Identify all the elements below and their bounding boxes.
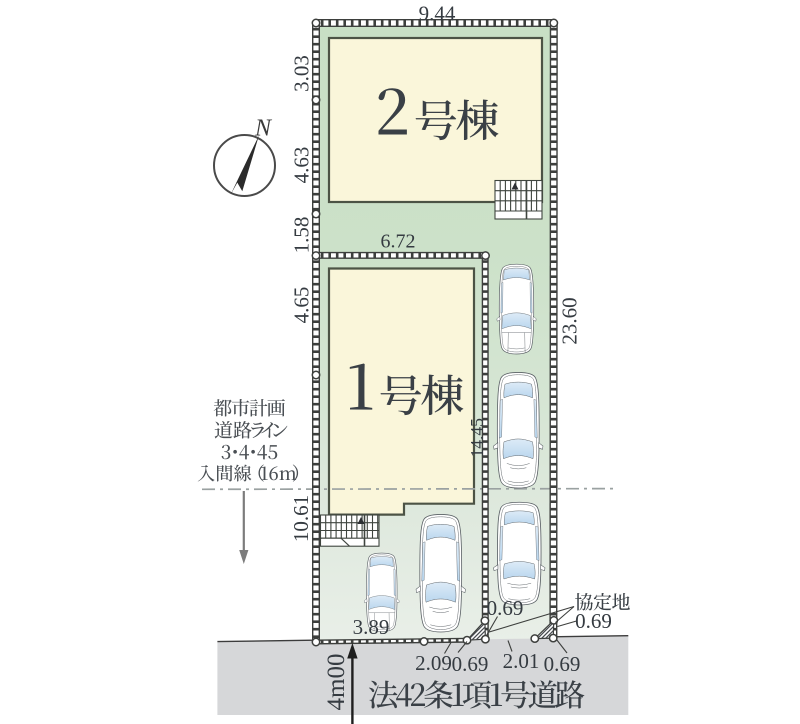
svg-text:2.09: 2.09	[415, 651, 452, 675]
svg-text:1.58: 1.58	[290, 217, 314, 254]
svg-text:14.45: 14.45	[467, 418, 487, 458]
svg-text:2.01: 2.01	[503, 649, 540, 673]
svg-text:6.72: 6.72	[381, 231, 416, 253]
svg-text:9.44: 9.44	[419, 2, 456, 26]
svg-text:23.60: 23.60	[558, 297, 582, 344]
svg-text:10.61: 10.61	[289, 495, 313, 542]
svg-text:4.65: 4.65	[290, 287, 314, 324]
svg-text:0.69: 0.69	[487, 596, 524, 620]
svg-text:4.63: 4.63	[290, 147, 314, 184]
svg-text:N: N	[254, 116, 273, 142]
svg-text:0.69: 0.69	[452, 652, 489, 676]
svg-text:0.69: 0.69	[575, 609, 612, 633]
svg-text:3.89: 3.89	[353, 615, 390, 639]
svg-text:0.69: 0.69	[544, 652, 581, 676]
svg-text:4m00: 4m00	[323, 654, 350, 711]
svg-text:3.03: 3.03	[290, 55, 314, 92]
